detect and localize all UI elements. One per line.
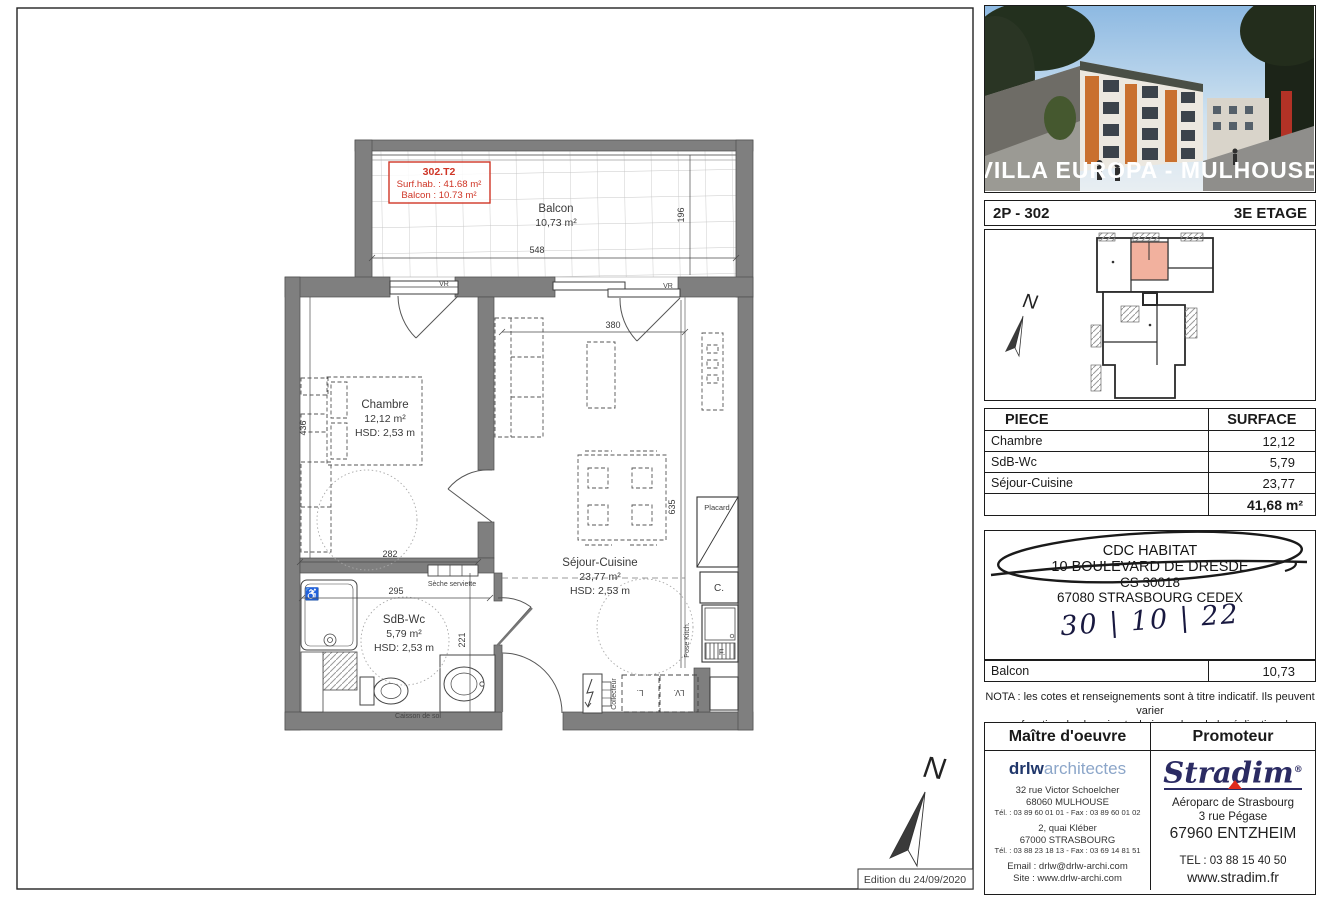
l-label: L.	[637, 688, 644, 697]
sejour-name: Séjour-Cuisine	[562, 557, 637, 569]
f-label: F.	[719, 648, 725, 657]
sejour-area: 23,77 m²	[579, 571, 621, 583]
table-row: Chambre 12,12	[985, 430, 1315, 451]
balcon-value: 10,73	[1208, 661, 1315, 681]
c-label: C.	[714, 583, 724, 594]
key-north-arrow: N	[1005, 290, 1040, 356]
chambre-area: 12,12 m²	[364, 413, 406, 425]
vr-label-chambre: VR	[439, 281, 449, 288]
stamp-line1: CDC HABITAT	[985, 543, 1315, 559]
unit-ref: 2P - 302	[993, 205, 1049, 222]
table-total-row: 41,68 m²	[985, 493, 1315, 515]
surface-table: PIECE SURFACE Chambre 12,12 SdB-Wc 5,79 …	[984, 408, 1316, 516]
sdb-name: SdB-Wc	[383, 614, 425, 626]
table-row: Séjour-Cuisine 23,77	[985, 472, 1315, 493]
chambre-hsd: HSD: 2,53 m	[355, 427, 415, 439]
col-surface: SURFACE	[1208, 409, 1315, 430]
unit-header: 2P - 302 3E ETAGE	[984, 200, 1316, 226]
pose-kitch-label: Pose Kitch.	[684, 622, 691, 657]
key-plan: N	[984, 229, 1316, 401]
balcon-name: Balcon	[538, 203, 573, 215]
caisson-label: Caisson de sol	[395, 713, 441, 720]
contractors-header: Maître d'oeuvre Promoteur	[985, 723, 1315, 751]
placard-label: Placard	[704, 503, 729, 512]
stradim-triangle-icon	[1228, 780, 1242, 789]
photo-illustration: VILLA EUROPA - MULHOUSE	[985, 6, 1314, 191]
edition-date: Edition du 24/09/2020	[864, 874, 966, 886]
sdb-area: 5,79 m²	[386, 628, 422, 640]
lv-label: LV.	[674, 688, 685, 697]
svg-text:282: 282	[382, 549, 397, 559]
svg-text:N: N	[1021, 290, 1040, 314]
balcon-label: Balcon	[985, 661, 1208, 681]
edition-box: Edition du 24/09/2020	[858, 869, 973, 889]
total-surface: 41,68 m²	[1208, 494, 1315, 515]
maitre-oeuvre-header: Maître d'oeuvre	[985, 723, 1150, 750]
unit-tag: 302.T2 Surf.hab. : 41.68 m² Balcon : 10.…	[389, 162, 490, 203]
drlw-logo: drlwarchitectes	[985, 759, 1150, 779]
promoteur-cell: Stradim® Aéroparc de Strasbourg 3 rue Pé…	[1150, 751, 1315, 890]
table-row: SdB-Wc 5,79	[985, 451, 1315, 472]
surface-table-header: PIECE SURFACE	[985, 409, 1315, 430]
stamp-box: CDC HABITAT 10 BOULEVARD DE DRESDE CS 30…	[984, 530, 1316, 660]
stamp-line2: 10 BOULEVARD DE DRESDE	[985, 559, 1315, 575]
svg-text:196: 196	[676, 207, 686, 222]
svg-text:295: 295	[388, 586, 403, 596]
plan-sheet: VR VR Placard C. F. Pose Kitch. ♿	[0, 0, 984, 900]
vr-label-sejour: VR	[663, 283, 673, 290]
svg-text:548: 548	[529, 245, 544, 255]
sdb-hsd: HSD: 2,53 m	[374, 642, 434, 654]
floor-plan-drawing: VR VR Placard C. F. Pose Kitch. ♿	[0, 0, 984, 900]
seche-serviette-label: Sèche serviette	[428, 581, 476, 588]
promoteur-header: Promoteur	[1150, 723, 1315, 750]
sejour-hsd: HSD: 2,53 m	[570, 585, 630, 597]
svg-text:Balcon : 10.73 m²: Balcon : 10.73 m²	[401, 190, 477, 201]
stradim-rule	[1164, 788, 1302, 790]
svg-text:635: 635	[667, 499, 677, 514]
svg-text:Surf.hab. : 41.68 m²: Surf.hab. : 41.68 m²	[397, 179, 483, 190]
stamp-line3: CS 30018	[985, 575, 1315, 590]
svg-text:380: 380	[605, 320, 620, 330]
balcon-area: 10,73 m²	[535, 217, 577, 229]
maitre-oeuvre-cell: drlwarchitectes 32 rue Victor Schoelcher…	[985, 751, 1150, 890]
wheelchair-icon: ♿	[305, 587, 320, 601]
sidebar: VILLA EUROPA - MULHOUSE 2P - 302 3E ETAG…	[984, 0, 1316, 900]
unit-floor: 3E ETAGE	[1234, 205, 1307, 222]
photo-caption: VILLA EUROPA - MULHOUSE	[985, 157, 1314, 183]
contractors-box: Maître d'oeuvre Promoteur drlwarchitecte…	[984, 722, 1316, 895]
col-piece: PIECE	[985, 409, 1208, 430]
collecteur-label: Collecteur	[611, 678, 618, 710]
key-plan-drawing: N	[985, 230, 1314, 399]
svg-text:302.T2: 302.T2	[423, 166, 456, 178]
balcon-row: Balcon 10,73	[984, 660, 1316, 682]
svg-text:436: 436	[298, 420, 308, 435]
chambre-name: Chambre	[361, 399, 408, 411]
svg-text:221: 221	[457, 632, 467, 647]
project-photo: VILLA EUROPA - MULHOUSE	[984, 5, 1316, 193]
